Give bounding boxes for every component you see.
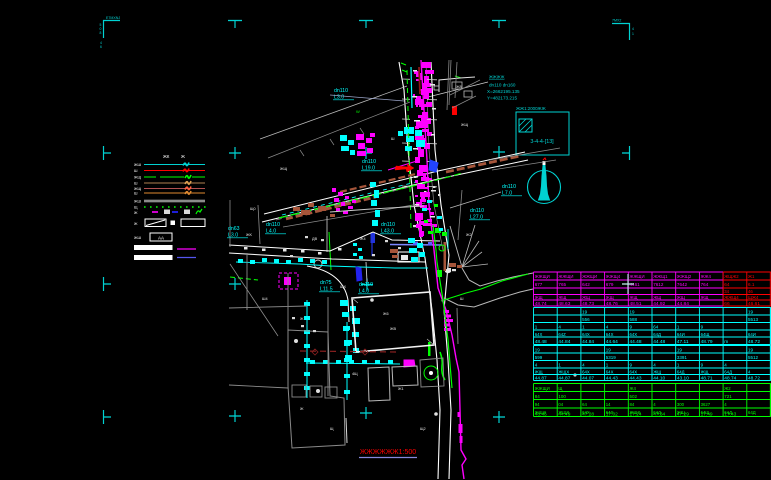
svg-text:48.76: 48.76 [606,301,618,307]
svg-text:04: 04 [558,402,563,407]
svg-text:44.84: 44.84 [582,339,594,345]
svg-text:ЖЖЩ1: ЖЖЩ1 [653,274,668,279]
svg-text:Ш: Ш [460,297,464,301]
svg-text:ЖЖЩИ: ЖЖЩИ [630,274,645,279]
svg-text:Ж: Ж [181,154,185,159]
svg-text:44.87: 44.87 [535,376,547,382]
svg-text:3391: 3391 [677,355,688,360]
svg-text:ЖЩ: ЖЩ [558,295,566,300]
svg-text:17.43: 17.43 [724,412,736,418]
svg-text:ЖЖ1:2000ЖЖ: ЖЖ1:2000ЖЖ [516,106,546,111]
svg-text:ЖЖЩ4: ЖЖЩ4 [724,295,739,300]
svg-text:48.72: 48.72 [748,376,760,382]
svg-text:ЖЩ: ЖЩ [701,369,709,374]
svg-text:ЖЖЖЖЖЖ1:500: ЖЖЖЖЖЖ1:500 [360,449,416,456]
svg-text:19: 19 [630,310,636,315]
svg-text:64Д: 64Д [677,369,685,374]
svg-text:556: 556 [582,317,590,322]
svg-text:44.43: 44.43 [630,376,642,382]
svg-text:dn63: dn63 [228,226,240,232]
svg-text:dn110: dn110 [362,159,376,165]
svg-text:ЖЩX: ЖЩX [558,369,569,374]
svg-text:ЖЩ: ЖЩ [653,369,661,374]
svg-text:764: 764 [701,282,709,287]
svg-text:ЖЩ: ЖЩ [134,176,142,180]
svg-text:64: 64 [582,402,587,407]
svg-text:ЖЖ4: ЖЖ4 [701,274,712,279]
svg-text:ЖЩ: ЖЩ [134,187,142,191]
svg-text:64Щ: 64Щ [701,332,710,337]
svg-text:48.74: 48.74 [724,376,736,382]
svg-text:ЖB: ЖB [390,327,397,331]
svg-text:48.51: 48.51 [630,301,642,307]
svg-text:Ж8: Ж8 [456,85,462,89]
svg-text:3-4-4-[13]: 3-4-4-[13] [530,139,554,145]
svg-text:Щ: Щ [134,206,138,210]
svg-text:ЖЩ: ЖЩ [535,369,543,374]
svg-text:Ж1: Ж1 [398,387,404,391]
svg-text:48.79: 48.79 [701,339,713,345]
svg-text:64Z: 64Z [558,332,566,337]
svg-text:679: 679 [606,282,614,287]
svg-text:Ш: Ш [134,169,138,173]
svg-text:ЖЩ: ЖЩ [630,295,638,300]
svg-text:19: 19 [677,348,683,353]
svg-text:ЖЖЩИ: ЖЖЩИ [535,386,550,391]
svg-text:66: 66 [724,301,730,307]
svg-text:ЖЖЩ2: ЖЖЩ2 [677,274,692,279]
svg-text:Ж: Ж [300,407,304,411]
svg-text:ЖШ: ЖШ [134,200,142,204]
svg-text:46: 46 [748,289,753,294]
svg-text:Ж: Ж [300,317,304,321]
svg-text:64X: 64X [582,332,590,337]
svg-text:4461: 4461 [630,282,641,287]
svg-text:642: 642 [582,282,590,287]
svg-text:ЖЖЩИ: ЖЖЩИ [558,274,573,279]
svg-text:34: 34 [724,289,729,294]
svg-text:48.48: 48.48 [535,339,547,345]
svg-text:100: 100 [558,394,566,399]
svg-text:47.29: 47.29 [677,412,689,418]
svg-text:44.87: 44.87 [558,376,570,382]
svg-text:6.1: 6.1 [748,282,755,287]
svg-text:677: 677 [535,282,543,287]
svg-text:19: 19 [606,348,612,353]
svg-text:Ш4: Ш4 [262,297,268,301]
svg-text:84: 84 [535,394,541,399]
svg-text:ЖЩ: ЖЩ [280,167,288,171]
svg-text:Ж1: Ж1 [748,274,755,279]
svg-text:5513: 5513 [748,317,759,322]
svg-text:ЖЩ: ЖЩ [677,295,685,300]
svg-text:64X: 64X [535,332,543,337]
svg-text:ЖЩ: ЖЩ [653,295,661,300]
svg-text:3627: 3627 [701,402,711,407]
svg-text:ЖЩ: ЖЩ [701,295,709,300]
svg-text:7612: 7612 [653,282,664,287]
svg-text:dn110: dn110 [266,222,280,228]
svg-text:44.49: 44.49 [558,412,570,418]
svg-text:44.48: 44.48 [653,339,665,345]
svg-text:Ш: Ш [134,182,138,186]
svg-text:300: 300 [677,402,685,407]
svg-text:ЖЩ: ЖЩ [461,123,469,127]
svg-text:ЖЖЖЖ: ЖЖЖЖ [489,75,505,80]
svg-text:ЖЖЩИ: ЖЖЩИ [582,274,597,279]
svg-text:19: 19 [748,310,754,315]
svg-text:17.24: 17.24 [630,412,642,418]
svg-text:47.34: 47.34 [653,412,665,418]
svg-text:64Д: 64Д [724,369,732,374]
svg-text:Щ: Щ [558,386,562,391]
svg-text:64X: 64X [606,369,614,374]
svg-text:ЖК: ЖК [163,154,170,159]
svg-text:64X: 64X [630,332,638,337]
svg-text:8: 8 [100,31,102,35]
svg-text:64Д: 64Д [653,332,661,337]
svg-text:44.48: 44.48 [630,339,642,345]
svg-text:5319: 5319 [606,355,617,360]
svg-text:48.63: 48.63 [558,301,570,307]
svg-text:44.84: 44.84 [677,301,689,307]
svg-text:46.61: 46.61 [748,301,760,307]
svg-text:64Д: 64Д [748,410,756,415]
svg-text:64И: 64И [748,332,756,337]
svg-text:64: 64 [653,325,659,330]
svg-text:ЖЩЖ2: ЖЩЖ2 [724,274,739,279]
svg-text:14: 14 [606,402,611,407]
svg-text:17.49: 17.49 [701,412,713,418]
svg-text:588: 588 [630,317,638,322]
svg-text:dn110: dn110 [334,88,348,94]
svg-text:ЖЖЩ4: ЖЖЩ4 [606,274,621,279]
svg-text:Ж4: Ж4 [360,237,366,241]
svg-text:765: 765 [558,282,566,287]
svg-text:48.74: 48.74 [535,301,547,307]
svg-text:64: 64 [724,282,730,287]
svg-text:ЖЩ: ЖЩ [606,295,614,300]
svg-text:dn110: dn110 [502,184,516,190]
svg-text:46.46: 46.46 [535,412,547,418]
svg-text:44.10: 44.10 [653,376,665,382]
svg-text:1: 1 [632,32,634,36]
svg-text:44.92: 44.92 [653,301,665,307]
svg-text:dn110 dn160: dn110 dn160 [489,83,516,88]
svg-text:dn?5: dn?5 [320,280,332,286]
svg-text:ЖЖЩИ: ЖЖЩИ [535,274,550,279]
svg-text:44.64: 44.64 [606,339,618,345]
svg-text:Ш: Ш [391,137,395,141]
svg-text:44.43: 44.43 [606,376,618,382]
svg-text:5512: 5512 [748,355,759,360]
svg-text:48.73: 48.73 [582,301,594,307]
svg-text:44.07: 44.07 [582,376,594,382]
svg-text:94: 94 [535,402,540,407]
svg-text:Щ2: Щ2 [420,427,426,431]
svg-text:Щ: Щ [330,427,334,431]
svg-text:ЩЖ4: ЩЖ4 [748,295,759,300]
svg-text:47.11: 47.11 [677,339,689,345]
svg-text:Ж2: Ж2 [466,233,472,237]
svg-text:64X: 64X [606,332,614,337]
svg-text:E7MXNJ: E7MXNJ [106,16,120,20]
svg-text:Ж: Ж [134,222,138,226]
svg-text:47.28: 47.28 [582,412,594,418]
svg-text:Щ0: Щ0 [250,207,256,211]
svg-text:dn110: dn110 [381,222,395,228]
svg-text:44.84: 44.84 [558,339,570,345]
svg-text:Ш: Ш [134,192,138,196]
svg-text:19: 19 [582,310,588,315]
svg-text:7MX2: 7MX2 [612,19,621,23]
svg-text:dn110: dn110 [359,282,373,288]
svg-text:721: 721 [724,394,732,399]
svg-text:19: 19 [535,348,541,353]
svg-text:Ж6: Ж6 [383,312,389,316]
svg-text:m: m [724,340,728,345]
svg-text:502: 502 [630,394,638,399]
svg-text:7642: 7642 [677,282,688,287]
svg-text:ДB: ДB [312,237,318,241]
svg-text:84: 84 [630,402,635,407]
svg-text:4: 4 [632,27,634,31]
svg-text:Y=482173.215: Y=482173.215 [487,96,517,101]
svg-text:17.02: 17.02 [606,412,618,418]
svg-text:Ж4: Ж4 [630,386,637,391]
svg-text:ЖШ: ЖШ [134,236,142,240]
svg-text:64И: 64И [677,332,685,337]
svg-text:dn110: dn110 [470,208,484,214]
svg-text:ЖЩ: ЖЩ [535,295,543,300]
svg-text:19: 19 [748,348,754,353]
svg-text:AA: AA [158,236,164,241]
svg-text:48.72: 48.72 [748,339,760,345]
svg-text:ЖШ: ЖШ [134,163,142,167]
svg-text:64X: 64X [630,369,638,374]
svg-text:48.71: 48.71 [701,376,713,382]
svg-text:W: W [356,109,360,114]
svg-text:X=2662195.135: X=2662195.135 [487,89,520,94]
svg-text:ЖЩ: ЖЩ [582,295,590,300]
svg-text:4Щ: 4Щ [352,372,358,376]
svg-text:43.10: 43.10 [677,376,689,382]
svg-text:ЩX: ЩX [340,285,347,289]
svg-text:ЖK: ЖK [246,233,253,237]
svg-text:Ж: Ж [134,211,138,215]
svg-text:64X: 64X [582,369,590,374]
svg-text:6: 6 [100,45,102,49]
svg-text:Ж2: Ж2 [724,386,731,391]
svg-text:599: 599 [535,355,543,360]
